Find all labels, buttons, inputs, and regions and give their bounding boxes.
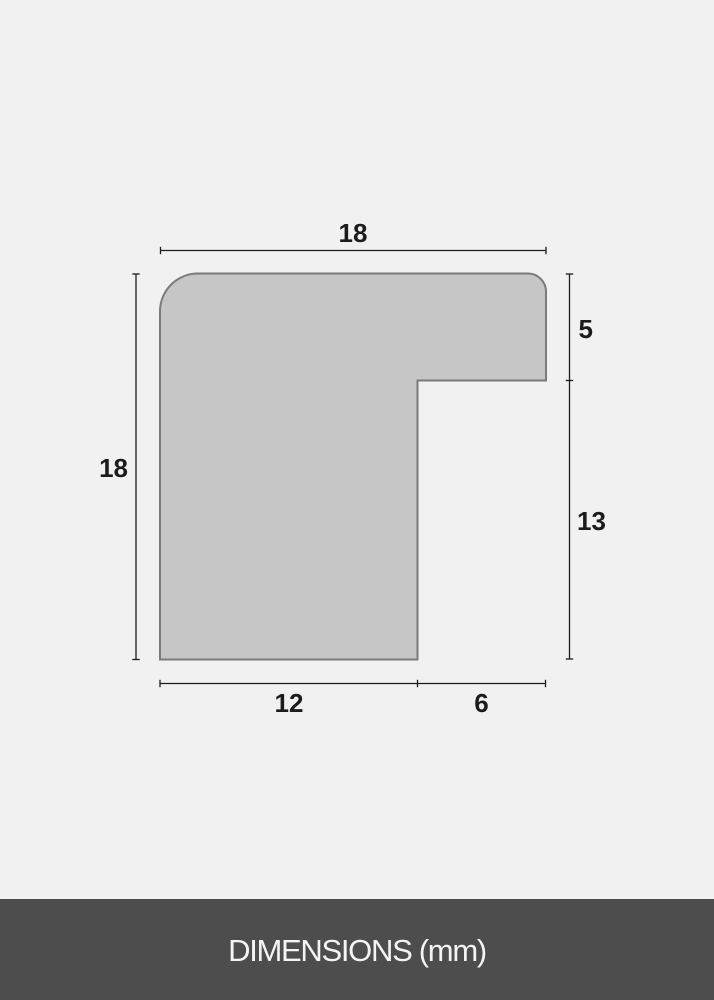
svg-text:6: 6 [474,688,488,718]
svg-text:12: 12 [275,688,304,718]
svg-text:18: 18 [339,218,368,248]
svg-text:13: 13 [577,506,606,536]
svg-text:18: 18 [99,453,128,483]
svg-text:5: 5 [579,314,593,344]
